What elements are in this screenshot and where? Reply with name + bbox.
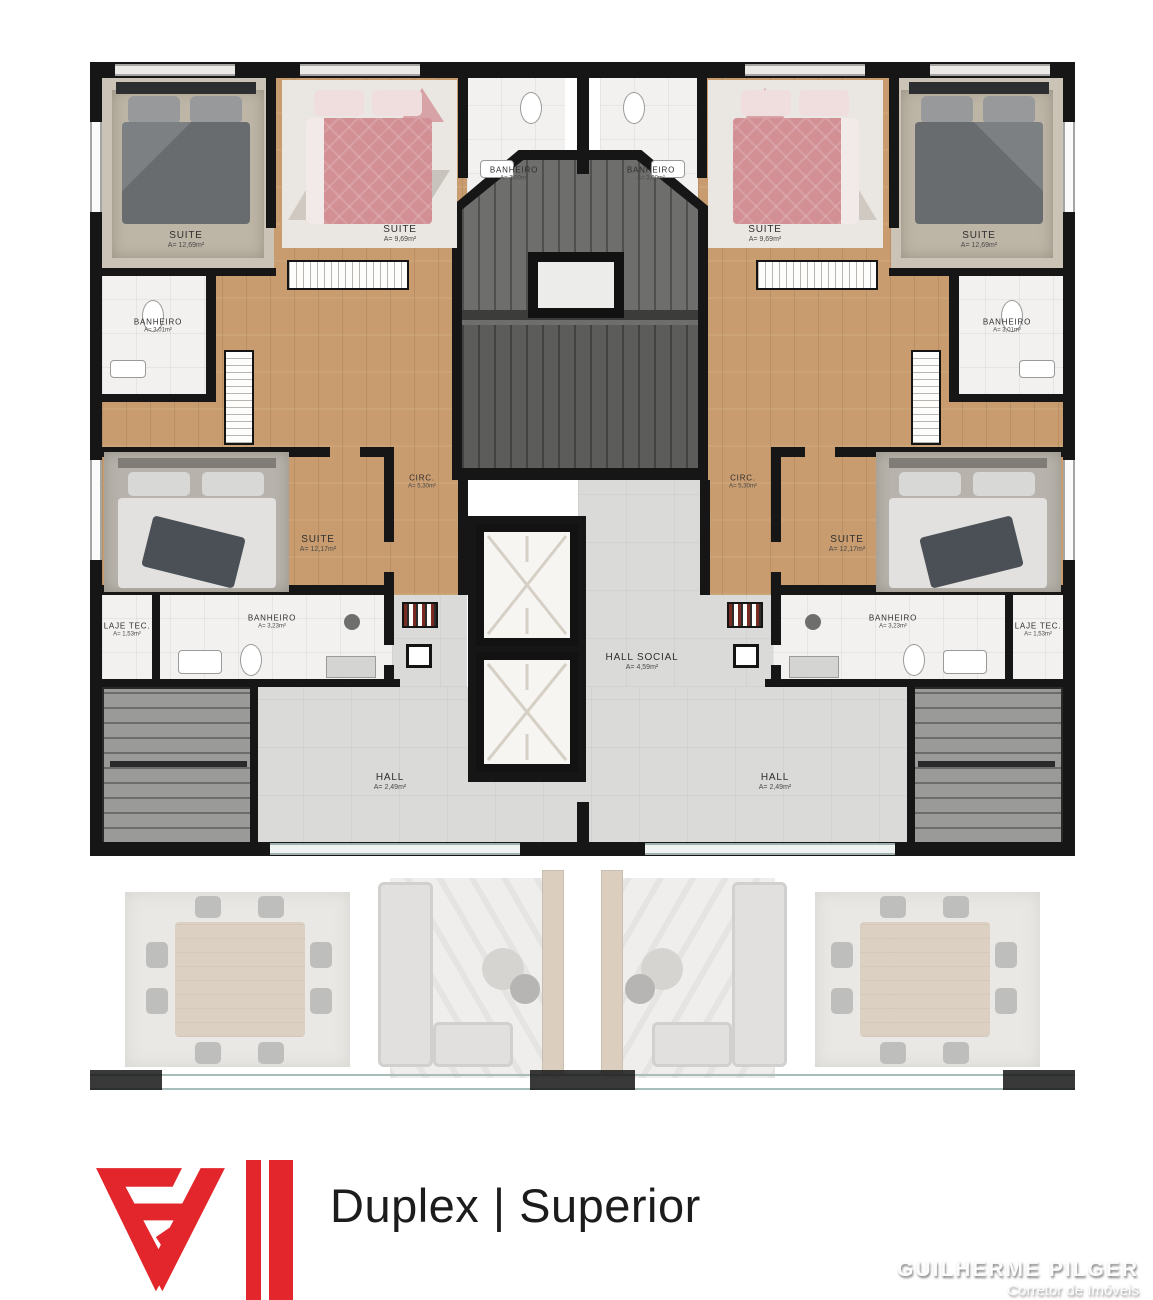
room-label-circ-right: CIRC. A= 5,30m² xyxy=(729,474,757,491)
lower-floor-ghost xyxy=(90,856,1075,1095)
room-area: A= 3,01m² xyxy=(983,327,1031,334)
toilet xyxy=(903,644,925,676)
wall-segment xyxy=(949,268,959,402)
wall-stub xyxy=(1003,1070,1075,1090)
bed-headboard xyxy=(909,82,1049,94)
window xyxy=(1063,122,1075,212)
shower-tray xyxy=(326,656,376,678)
stair-flight-lower xyxy=(462,325,698,470)
sofa-chaise xyxy=(652,1022,732,1067)
wall-front xyxy=(90,842,1075,856)
stair-core-walls xyxy=(452,150,708,480)
window xyxy=(745,64,865,76)
window xyxy=(115,64,235,76)
shoe-cabinet xyxy=(402,602,438,628)
room-label-suite-top-right: SUITE A= 9,69m² xyxy=(748,224,781,244)
room-name: CIRC. xyxy=(408,474,436,484)
room-label-banheiro-side-right: BANHEIRO A= 3,01m² xyxy=(983,318,1031,335)
window xyxy=(300,64,420,76)
room-name: BANHEIRO xyxy=(134,318,182,328)
dining-chair xyxy=(995,988,1017,1014)
room-area: A= 3,00m² xyxy=(627,175,675,182)
room-area: A= 3,23m² xyxy=(248,623,296,630)
bed-pillow xyxy=(372,90,422,116)
room-name: SUITE xyxy=(829,534,865,546)
vanity xyxy=(178,650,222,674)
room-area: A= 12,17m² xyxy=(829,546,865,554)
wall-segment xyxy=(771,595,781,645)
wall-frame xyxy=(733,644,759,668)
room-area: A= 9,69m² xyxy=(383,236,416,244)
room-name: BANHEIRO xyxy=(869,614,917,624)
dining-chair xyxy=(943,896,969,918)
sofa-chaise xyxy=(433,1022,513,1067)
wall-frame xyxy=(406,644,432,668)
room-name: BANHEIRO xyxy=(248,614,296,624)
wall-segment xyxy=(700,480,710,595)
bed-pillow xyxy=(314,90,364,116)
wardrobe xyxy=(287,260,409,290)
room-label-banheiro-top-right: BANHEIRO A= 3,00m² xyxy=(627,166,675,183)
room-name: SUITE xyxy=(748,224,781,236)
bed-headboard xyxy=(116,82,256,94)
room-area: A= 3,00m² xyxy=(490,175,538,182)
room-label-banheiro-lower-left: BANHEIRO A= 3,23m² xyxy=(248,614,296,631)
shower-head xyxy=(805,614,821,630)
room-name: BANHEIRO xyxy=(627,166,675,176)
room-area: A= 9,69m² xyxy=(748,236,781,244)
room-label-circ-left: CIRC. A= 5,30m² xyxy=(408,474,436,491)
window xyxy=(90,122,102,212)
floor-plan-page: SUITE A= 12,69m² SUITE A= 12,69m² SUITE … xyxy=(0,0,1153,1300)
agent-signature: GUILHERME PILGER Corretor de Imóveis xyxy=(897,1258,1139,1299)
wall-segment xyxy=(907,687,915,844)
bed-duvet xyxy=(915,122,1043,224)
bed-suite-corner-right xyxy=(909,78,1049,228)
coffee-table xyxy=(510,974,540,1004)
wall-segment xyxy=(1005,595,1013,687)
room-area: A= 3,01m² xyxy=(134,327,182,334)
bed-pillow xyxy=(202,472,264,496)
bed-sheet xyxy=(306,118,324,224)
room-label-suite-top-left: SUITE A= 9,69m² xyxy=(383,224,416,244)
bed-pillow xyxy=(983,96,1035,124)
room-area: A= 1,53m² xyxy=(1015,631,1062,638)
room-area: A= 2,49m² xyxy=(374,784,407,792)
room-label-suite-corner-right: SUITE A= 12,69m² xyxy=(961,230,997,250)
dining-chair xyxy=(195,1042,221,1064)
wall-segment xyxy=(206,268,216,402)
window xyxy=(930,64,1050,76)
wardrobe xyxy=(224,350,254,445)
wall-segment xyxy=(90,268,276,276)
dining-chair xyxy=(831,942,853,968)
room-label-suite-master-right: SUITE A= 12,17m² xyxy=(829,534,865,554)
sideboard xyxy=(601,870,623,1075)
floor-banheiro-side-right xyxy=(951,274,1063,402)
room-area: A= 3,23m² xyxy=(869,623,917,630)
bed-headboard xyxy=(118,458,276,468)
room-label-suite-master-left: SUITE A= 12,17m² xyxy=(300,534,336,554)
wardrobe xyxy=(911,350,941,445)
room-label-banheiro-side-left: BANHEIRO A= 3,01m² xyxy=(134,318,182,335)
wall-segment xyxy=(949,394,1075,402)
elevator-a-marble xyxy=(484,532,570,638)
room-label-laje-tec-left: LAJE TEC. A= 1,53m² xyxy=(104,622,151,639)
wall-segment xyxy=(458,78,468,178)
bed-sheet xyxy=(841,118,859,224)
room-name: BANHEIRO xyxy=(490,166,538,176)
dining-chair xyxy=(258,896,284,918)
bed-suite-master-left xyxy=(118,458,276,588)
wardrobe xyxy=(756,260,878,290)
wall-segment xyxy=(765,679,1075,687)
floor-plan: SUITE A= 12,69m² SUITE A= 12,69m² SUITE … xyxy=(90,62,1075,1095)
room-area: A= 12,17m² xyxy=(300,546,336,554)
bed-suite-top-left xyxy=(306,84,432,224)
room-area: A= 4,59m² xyxy=(606,664,679,672)
room-name: SUITE xyxy=(383,224,416,236)
room-name: LAJE TEC. xyxy=(1015,622,1062,632)
agent-role: Corretor de Imóveis xyxy=(897,1282,1139,1299)
shower-tray xyxy=(789,656,839,678)
sofa xyxy=(732,882,787,1067)
elevator-b-marble xyxy=(484,660,570,764)
coffee-table xyxy=(625,974,655,1004)
floor-banheiro-side-left xyxy=(102,274,214,402)
brand-bar-icon xyxy=(246,1160,261,1300)
room-label-hall-social: HALL SOCIAL A= 4,59m² xyxy=(606,652,679,672)
brand-bar-icon xyxy=(269,1160,293,1300)
sink xyxy=(1019,360,1055,378)
room-area: A= 12,69m² xyxy=(168,242,204,250)
room-name: HALL xyxy=(759,772,792,784)
room-area: A= 1,53m² xyxy=(104,631,151,638)
dining-chair xyxy=(258,1042,284,1064)
agent-name: GUILHERME PILGER xyxy=(897,1258,1139,1282)
wall-segment xyxy=(697,78,707,178)
bed-pillow xyxy=(128,96,180,124)
wall-segment xyxy=(452,468,708,480)
bed-pillow xyxy=(799,90,849,116)
room-label-hall-right: HALL A= 2,49m² xyxy=(759,772,792,792)
room-label-hall-left: HALL A= 2,49m² xyxy=(374,772,407,792)
bed-pillow xyxy=(899,472,961,496)
dining-chair xyxy=(995,942,1017,968)
window xyxy=(90,460,102,560)
dining-chair xyxy=(195,896,221,918)
dining-chair xyxy=(880,896,906,918)
wall-segment xyxy=(90,679,400,687)
toilet xyxy=(520,92,542,124)
dining-chair xyxy=(831,988,853,1014)
dining-table xyxy=(175,922,305,1037)
room-name: SUITE xyxy=(300,534,336,546)
bed-duvet xyxy=(122,122,250,224)
room-area: A= 12,69m² xyxy=(961,242,997,250)
bed-pillow xyxy=(921,96,973,124)
wall-segment xyxy=(771,447,781,542)
shoe-cabinet xyxy=(727,602,763,628)
glass-door xyxy=(645,843,895,855)
bed-suite-corner-left xyxy=(116,78,256,228)
wall-segment xyxy=(250,687,258,844)
stair-rail xyxy=(110,761,247,767)
wall-segment xyxy=(577,802,589,844)
room-label-suite-corner-left: SUITE A= 12,69m² xyxy=(168,230,204,250)
wall-segment xyxy=(889,78,899,228)
elevator-b xyxy=(476,652,578,772)
wall-stub xyxy=(90,1070,162,1090)
shower-head xyxy=(344,614,360,630)
wall-segment xyxy=(384,447,394,542)
bed-pillow xyxy=(128,472,190,496)
dining-chair xyxy=(310,988,332,1014)
duplex-stairs-right xyxy=(910,687,1063,844)
toilet xyxy=(240,644,262,676)
room-name: BANHEIRO xyxy=(983,318,1031,328)
wall-segment xyxy=(90,394,216,402)
room-name: SUITE xyxy=(961,230,997,242)
bed-suite-master-right xyxy=(889,458,1047,588)
room-name: LAJE TEC. xyxy=(104,622,151,632)
bed-suite-top-right xyxy=(733,84,859,224)
sideboard xyxy=(542,870,564,1075)
bed-headboard xyxy=(889,458,1047,468)
plan-title: Duplex | Superior xyxy=(330,1178,701,1233)
sofa xyxy=(378,882,433,1067)
wall-segment xyxy=(152,595,160,687)
toilet xyxy=(623,92,645,124)
room-label-banheiro-top-left: BANHEIRO A= 3,00m² xyxy=(490,166,538,183)
bed-pillow xyxy=(190,96,242,124)
dining-chair xyxy=(146,942,168,968)
room-name: SUITE xyxy=(168,230,204,242)
bed-duvet xyxy=(306,118,432,224)
bed-pillow xyxy=(741,90,791,116)
room-area: A= 2,49m² xyxy=(759,784,792,792)
dining-chair xyxy=(880,1042,906,1064)
dining-chair xyxy=(310,942,332,968)
room-area: A= 5,30m² xyxy=(408,483,436,490)
bed-pillow xyxy=(973,472,1035,496)
wall-top xyxy=(90,62,1075,78)
stair-rail xyxy=(918,761,1055,767)
wall-segment xyxy=(458,480,468,595)
wall-segment xyxy=(266,78,276,228)
room-name: HALL SOCIAL xyxy=(606,652,679,664)
wall-segment xyxy=(384,595,394,645)
glass-door xyxy=(270,843,520,855)
elevator-a xyxy=(476,524,578,646)
sink xyxy=(110,360,146,378)
dining-chair xyxy=(943,1042,969,1064)
stair-shaft-opening xyxy=(528,252,624,318)
dining-chair xyxy=(146,988,168,1014)
room-label-banheiro-lower-right: BANHEIRO A= 3,23m² xyxy=(869,614,917,631)
wall-center-top xyxy=(577,78,589,174)
room-name: HALL xyxy=(374,772,407,784)
vanity xyxy=(943,650,987,674)
duplex-stairs-left xyxy=(102,687,255,844)
wall-segment xyxy=(889,268,1075,276)
room-name: CIRC. xyxy=(729,474,757,484)
wall-stub xyxy=(530,1070,635,1090)
room-area: A= 5,30m² xyxy=(729,483,757,490)
dining-table xyxy=(860,922,990,1037)
window xyxy=(1063,460,1075,560)
brand-logo-icon xyxy=(88,1155,233,1295)
stair-core-floor xyxy=(462,160,698,470)
room-label-laje-tec-right: LAJE TEC. A= 1,53m² xyxy=(1015,622,1062,639)
